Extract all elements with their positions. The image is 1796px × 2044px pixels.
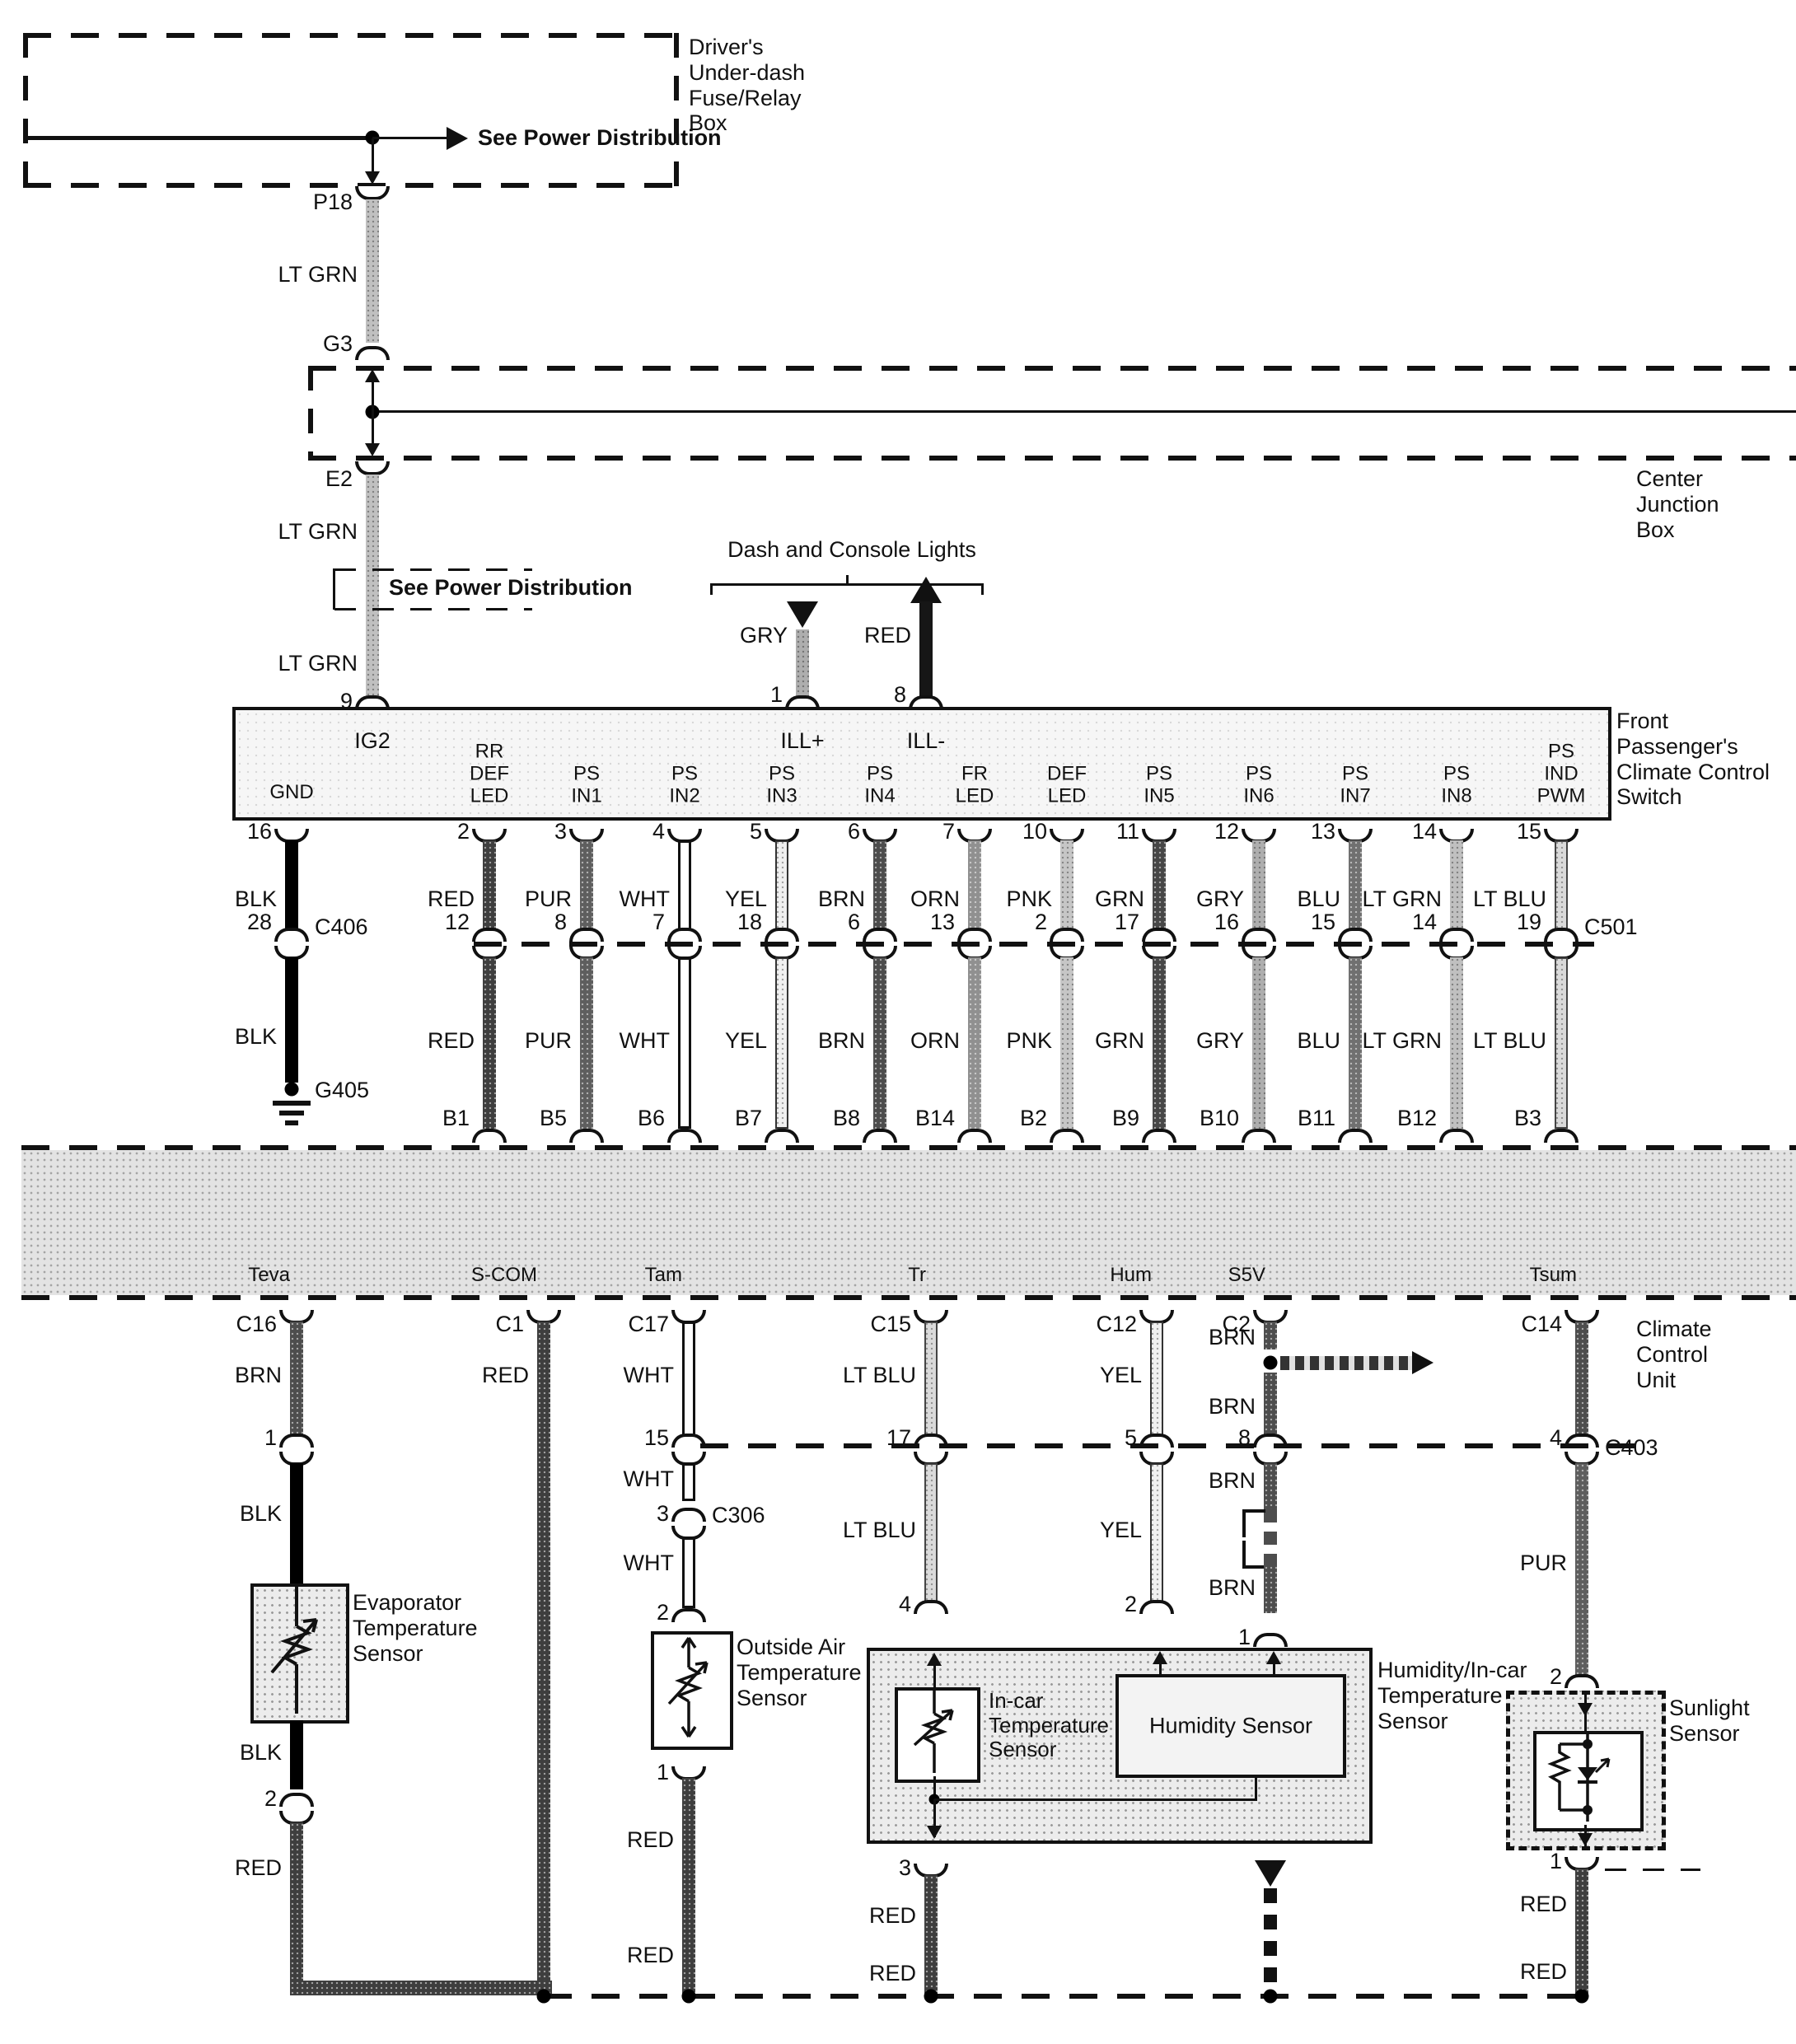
pin-number: 6 bbox=[848, 819, 860, 844]
wire-color-label: WHT bbox=[620, 886, 670, 912]
wire-color-label: BRN bbox=[1209, 1394, 1256, 1420]
junction-drop-line bbox=[372, 376, 374, 450]
wire-color-label: RED bbox=[627, 1827, 674, 1853]
wire bbox=[1153, 840, 1166, 933]
ccu-signal-tam: Tam bbox=[645, 1264, 682, 1286]
wire bbox=[1575, 1869, 1588, 1994]
connector-cap bbox=[1338, 928, 1373, 942]
connector-line-c403 bbox=[700, 1443, 1639, 1448]
wire bbox=[1252, 957, 1265, 1129]
junction-box-border-bottom bbox=[308, 456, 1796, 461]
b-pin-number: B5 bbox=[540, 1106, 567, 1131]
wire bbox=[1264, 1463, 1277, 1509]
down-arrow-icon bbox=[787, 601, 818, 628]
pin-number: 13 bbox=[1311, 819, 1335, 844]
connector-c14: C14 bbox=[1521, 1312, 1562, 1337]
junction-dot bbox=[1264, 1356, 1278, 1370]
connector-cap bbox=[667, 928, 702, 942]
wire bbox=[873, 957, 886, 1129]
wire-color-label: RED bbox=[627, 1943, 674, 1968]
wire-color-label: ORN bbox=[910, 886, 960, 912]
wire bbox=[682, 1537, 695, 1608]
ccu-signal-tr: Tr bbox=[908, 1264, 926, 1286]
ground-dot bbox=[285, 1083, 299, 1097]
connector-cap bbox=[355, 461, 390, 475]
wire-color-label: GRY bbox=[740, 623, 788, 648]
wire bbox=[1060, 840, 1073, 933]
pin-number: 2 bbox=[657, 1600, 669, 1625]
mid-pin-number: 18 bbox=[737, 910, 762, 935]
wire bbox=[924, 1875, 938, 1994]
ccu-signal-teva: Teva bbox=[248, 1264, 290, 1286]
connector-cap bbox=[1338, 1129, 1373, 1143]
b-pin-number: B3 bbox=[1514, 1106, 1541, 1131]
mid-pin-number: 19 bbox=[1517, 910, 1541, 935]
pin-name: PS IN1 bbox=[571, 763, 601, 807]
wire-color-label: GRN bbox=[1095, 1028, 1144, 1054]
pin-name: FR LED bbox=[956, 763, 994, 807]
wire bbox=[1349, 840, 1362, 933]
pin-g3: G3 bbox=[323, 331, 353, 357]
wire-color-label: RED bbox=[235, 1855, 282, 1881]
wire bbox=[1264, 1565, 1277, 1613]
down-arrow-icon bbox=[365, 171, 380, 185]
wire bbox=[290, 1321, 303, 1437]
mid-pin-number: 15 bbox=[1311, 910, 1335, 935]
wire-color-label: PNK bbox=[1006, 1028, 1052, 1054]
wire bbox=[1450, 957, 1463, 1129]
wire bbox=[1264, 1321, 1277, 1349]
wire bbox=[1450, 840, 1463, 933]
fuse-box-border-bottom bbox=[23, 183, 677, 188]
pin-number: 2 bbox=[264, 1786, 277, 1812]
connector-cap bbox=[1139, 1600, 1174, 1614]
pin-number: 1 bbox=[264, 1425, 277, 1451]
wire bbox=[290, 1720, 303, 1789]
ground-icon bbox=[285, 1120, 298, 1125]
pin-number: 15 bbox=[1517, 819, 1541, 844]
pin-name: PS IND PWM bbox=[1537, 741, 1586, 807]
wire bbox=[682, 1321, 695, 1437]
pin-number: 1 bbox=[1550, 1849, 1562, 1874]
see-power-distribution-note: See Power Distribution bbox=[478, 125, 722, 151]
wire bbox=[1555, 840, 1568, 933]
wire-color-label: BLK bbox=[240, 1501, 282, 1527]
wire-color-label: RED bbox=[1520, 1892, 1567, 1917]
pin-28: 28 bbox=[247, 910, 272, 935]
wire-color-label: ORN bbox=[910, 1028, 960, 1054]
b-pin-number: B14 bbox=[915, 1106, 955, 1131]
connector-cap bbox=[671, 1508, 706, 1522]
connector-cap bbox=[1544, 1129, 1579, 1143]
thermistor-icon bbox=[654, 1635, 723, 1740]
continuation-arrow bbox=[1280, 1356, 1412, 1370]
connector-cap bbox=[957, 928, 992, 942]
internal-wire bbox=[934, 1798, 1257, 1801]
wire-blk bbox=[285, 840, 298, 933]
mid-pin-number: 14 bbox=[1412, 910, 1437, 935]
down-arrow-icon bbox=[365, 443, 380, 456]
junction-box-border-top bbox=[308, 366, 1796, 371]
wire-color-label: LT GRN bbox=[278, 519, 358, 545]
pin-number: 3 bbox=[899, 1855, 911, 1881]
wire-gry bbox=[796, 629, 809, 697]
pin-number: 11 bbox=[1116, 819, 1139, 844]
connector-cap bbox=[274, 928, 309, 942]
junction-box-label: Center Junction Box bbox=[1636, 466, 1719, 542]
wire bbox=[1575, 1321, 1588, 1437]
pin-e2: E2 bbox=[325, 466, 353, 492]
pin-number: 3 bbox=[554, 819, 567, 844]
wire-color-label: PNK bbox=[1006, 886, 1052, 912]
b-pin-number: B11 bbox=[1298, 1106, 1335, 1131]
connector-cap bbox=[355, 186, 390, 200]
pin-1: 1 bbox=[770, 682, 783, 708]
pin-name: PS IN2 bbox=[669, 763, 699, 807]
connector-cap bbox=[1242, 1129, 1276, 1143]
mid-pin-number: 2 bbox=[1035, 910, 1047, 935]
b-pin-number: B6 bbox=[638, 1106, 665, 1131]
wire-color-label: LT BLU bbox=[1473, 886, 1546, 912]
wire-color-label: RED bbox=[869, 1961, 916, 1986]
pin-name: PS IN3 bbox=[766, 763, 797, 807]
wire bbox=[924, 1463, 938, 1613]
ccu-signal-hum: Hum bbox=[1110, 1264, 1152, 1286]
junction-dot bbox=[1264, 1990, 1278, 2004]
thermistor-icon bbox=[898, 1691, 970, 1773]
wire-color-label: LT GRN bbox=[278, 651, 358, 676]
ground-icon bbox=[273, 1101, 311, 1106]
b-pin-number: B7 bbox=[735, 1106, 762, 1131]
connector-cap bbox=[1050, 1129, 1084, 1143]
wire bbox=[678, 957, 691, 1129]
pin-number: 2 bbox=[457, 819, 470, 844]
wire-color-label: RED bbox=[869, 1903, 916, 1929]
fuse-box-border-left bbox=[23, 33, 28, 188]
connector-cap bbox=[1439, 1129, 1474, 1143]
mid-pin-number: 17 bbox=[1115, 910, 1139, 935]
outside-air-temperature-sensor bbox=[651, 1631, 733, 1750]
connector-cap bbox=[1142, 928, 1176, 942]
wire-color-label: LT GRN bbox=[1362, 886, 1442, 912]
feed-wire bbox=[25, 136, 374, 140]
connector-cap bbox=[1564, 1674, 1599, 1688]
b-pin-number: B12 bbox=[1397, 1106, 1437, 1131]
connector-cap bbox=[863, 928, 897, 942]
bottom-bus-line bbox=[544, 1994, 1588, 1999]
wire-blk bbox=[285, 957, 298, 1083]
wire bbox=[924, 1321, 938, 1437]
wire bbox=[1150, 1321, 1163, 1437]
connector-cap bbox=[957, 1129, 992, 1143]
connector-cap bbox=[279, 1434, 314, 1448]
shield-wire-segment bbox=[1264, 1509, 1277, 1565]
in-car-temperature-sensor bbox=[895, 1687, 980, 1783]
junction-dot bbox=[682, 1990, 696, 2004]
wire-color-label: BRN bbox=[235, 1363, 282, 1388]
connector-cap bbox=[914, 1600, 948, 1614]
wire-color-label: WHT bbox=[624, 1466, 674, 1492]
right-arrow-icon bbox=[1412, 1351, 1434, 1374]
ccu-label: Climate Control Unit bbox=[1636, 1317, 1712, 1392]
shield-bracket-icon bbox=[1242, 1509, 1265, 1537]
wire-color-label: RED bbox=[428, 1028, 475, 1054]
wire bbox=[1252, 840, 1265, 933]
wire-color-label: GRY bbox=[1196, 886, 1244, 912]
up-arrow-icon bbox=[365, 369, 380, 382]
wire bbox=[682, 1778, 695, 1994]
b-pin-number: B10 bbox=[1200, 1106, 1239, 1131]
signal-gnd: GND bbox=[269, 781, 313, 803]
wire-color-label: YEL bbox=[1100, 1363, 1142, 1388]
arrow-line bbox=[372, 137, 447, 139]
connector-cap bbox=[765, 1129, 799, 1143]
humidity-incar-temperature-sensor: In-car Temperature Sensor Humidity Senso… bbox=[867, 1648, 1373, 1844]
wire-color-label: BLK bbox=[240, 1740, 282, 1766]
wire-color-label: BLK bbox=[235, 1024, 277, 1050]
signal-ig2: IG2 bbox=[354, 728, 391, 754]
wire-lt-grn bbox=[366, 475, 379, 697]
wire bbox=[580, 957, 593, 1129]
pin-number: 7 bbox=[942, 819, 955, 844]
pin-number: 5 bbox=[750, 819, 762, 844]
wire bbox=[1060, 957, 1073, 1129]
pin-number: 1 bbox=[1238, 1625, 1251, 1650]
pin-number: 12 bbox=[1214, 819, 1239, 844]
junction-dot bbox=[924, 1990, 938, 2004]
wire-color-label: GRN bbox=[1095, 886, 1144, 912]
wire-elbow bbox=[290, 1981, 552, 1995]
connector-cap bbox=[671, 1608, 706, 1622]
wire-color-label: BRN bbox=[818, 886, 865, 912]
pin-p18: P18 bbox=[313, 189, 353, 215]
connector-cap bbox=[472, 928, 507, 942]
wire bbox=[1153, 957, 1166, 1129]
down-arrow-icon bbox=[1578, 1833, 1593, 1846]
note-bracket bbox=[333, 568, 335, 610]
humidity-sensor: Humidity Sensor bbox=[1115, 1674, 1346, 1778]
connector-cap bbox=[1439, 928, 1474, 942]
connector-c15: C15 bbox=[870, 1312, 911, 1337]
signal-ill-plus: ILL+ bbox=[780, 728, 824, 754]
pin-number: 2 bbox=[1125, 1592, 1137, 1617]
wire-color-label: YEL bbox=[725, 886, 767, 912]
mid-pin-number: 16 bbox=[1214, 910, 1239, 935]
ground-g405: G405 bbox=[315, 1078, 369, 1103]
sensor-label: Evaporator Temperature Sensor bbox=[353, 1590, 478, 1666]
pin-name: PS IN5 bbox=[1144, 763, 1174, 807]
evaporator-temperature-sensor bbox=[250, 1583, 349, 1724]
wire-color-label: RED bbox=[864, 623, 911, 648]
wire bbox=[775, 957, 788, 1129]
connector-c501: C501 bbox=[1584, 914, 1638, 940]
pin-number: 15 bbox=[644, 1425, 669, 1451]
wire bbox=[968, 957, 981, 1129]
up-arrow-icon bbox=[910, 577, 942, 603]
wire-lt-grn bbox=[366, 199, 379, 343]
pin-number: 4 bbox=[652, 819, 665, 844]
mid-pin-number: 7 bbox=[652, 910, 665, 935]
connector-cap bbox=[863, 1129, 897, 1143]
mid-pin-number: 6 bbox=[848, 910, 860, 935]
connector-c12: C12 bbox=[1096, 1312, 1137, 1337]
connector-cap bbox=[355, 346, 390, 360]
wire bbox=[290, 1463, 303, 1583]
wire bbox=[775, 840, 788, 933]
pin-8: 8 bbox=[894, 682, 906, 708]
wire-color-label: RED bbox=[428, 886, 475, 912]
photodiode-icon bbox=[1536, 1734, 1634, 1822]
right-arrow-icon bbox=[447, 127, 468, 150]
pin-number: 4 bbox=[899, 1592, 911, 1617]
connector-cap bbox=[569, 928, 604, 942]
down-arrow-icon bbox=[1255, 1860, 1286, 1887]
down-arrow-icon bbox=[927, 1826, 942, 1839]
connector-cap bbox=[279, 1793, 314, 1807]
wire-color-label: BRN bbox=[1209, 1325, 1256, 1350]
junction-bus-line bbox=[372, 410, 1796, 413]
brace-tick bbox=[710, 583, 713, 595]
b-pin-number: B9 bbox=[1112, 1106, 1139, 1131]
note-line-bottom bbox=[334, 608, 532, 610]
wire bbox=[1150, 1463, 1163, 1613]
wire-color-label: RED bbox=[1520, 1959, 1567, 1985]
wire-color-label: LT GRN bbox=[1362, 1028, 1442, 1054]
wire-color-label: BLU bbox=[1297, 886, 1340, 912]
connector-c406: C406 bbox=[315, 914, 368, 940]
connector-cap bbox=[1142, 1129, 1176, 1143]
wire-color-label: BLU bbox=[1297, 1028, 1340, 1054]
connector-cap bbox=[667, 1129, 702, 1143]
wire-color-label: LT BLU bbox=[843, 1518, 916, 1543]
pin-number: 1 bbox=[657, 1760, 669, 1785]
junction-box-border-left bbox=[308, 366, 313, 461]
fuse-box-border-right bbox=[674, 33, 679, 188]
wire-color-label: LT GRN bbox=[278, 262, 358, 288]
humidity-incar-label: Humidity/In-car Temperature Sensor bbox=[1377, 1658, 1527, 1733]
connector-cap bbox=[765, 928, 799, 942]
wire bbox=[1555, 957, 1568, 1129]
connector-c306: C306 bbox=[712, 1503, 765, 1528]
sensor-label: In-car Temperature Sensor bbox=[989, 1689, 1109, 1762]
wire bbox=[290, 1822, 303, 1982]
fuse-box-border-top bbox=[23, 33, 677, 38]
pin-number: 2 bbox=[1550, 1664, 1562, 1690]
ccu-signal-scom: S-COM bbox=[471, 1264, 537, 1286]
connector-c16: C16 bbox=[236, 1312, 277, 1337]
switch-box-label: Front Passenger's Climate Control Switch bbox=[1616, 709, 1770, 810]
dashed-continuation-wire bbox=[1264, 1888, 1277, 1989]
ccu-signal-tsum: Tsum bbox=[1530, 1264, 1577, 1286]
thermistor-icon bbox=[254, 1587, 339, 1714]
ccu-border-top bbox=[21, 1145, 1796, 1150]
wire-color-label: YEL bbox=[1100, 1518, 1142, 1543]
wire-color-label: LT BLU bbox=[1473, 1028, 1546, 1054]
pin-number: 10 bbox=[1022, 819, 1047, 844]
ground-icon bbox=[279, 1111, 304, 1116]
wire bbox=[678, 840, 691, 933]
signal-ill-minus: ILL- bbox=[907, 728, 946, 754]
wire bbox=[682, 1463, 695, 1501]
connector-c17: C17 bbox=[628, 1312, 669, 1337]
see-power-distribution-note: See Power Distribution bbox=[389, 575, 633, 601]
up-arrow-icon bbox=[1153, 1651, 1167, 1664]
connector-cap bbox=[1544, 928, 1579, 942]
note-line-top bbox=[334, 568, 532, 571]
junction-dot bbox=[1575, 1990, 1589, 2004]
pin-name: PS IN4 bbox=[864, 763, 895, 807]
dash-console-lights-title: Dash and Console Lights bbox=[727, 537, 976, 563]
pin-name: PS IN6 bbox=[1243, 763, 1274, 807]
wire-color-label: LT BLU bbox=[843, 1363, 916, 1388]
wire bbox=[537, 1321, 550, 1996]
b-pin-number: B2 bbox=[1020, 1106, 1047, 1131]
wire-color-label: PUR bbox=[1520, 1551, 1567, 1576]
connector-cap bbox=[472, 1129, 507, 1143]
mid-pin-number: 13 bbox=[930, 910, 955, 935]
mid-pin-number: 12 bbox=[445, 910, 470, 935]
connector-cap bbox=[1253, 1633, 1288, 1647]
wire bbox=[1575, 1463, 1588, 1676]
pin-name: DEF LED bbox=[1047, 763, 1087, 807]
wire-color-label: WHT bbox=[624, 1363, 674, 1388]
wire-color-label: BRN bbox=[1209, 1468, 1256, 1494]
connector-cap bbox=[569, 1129, 604, 1143]
wire-color-label: BRN bbox=[818, 1028, 865, 1054]
shield-bracket-icon bbox=[1242, 1541, 1265, 1569]
wire bbox=[1264, 1373, 1277, 1437]
wire bbox=[483, 840, 496, 933]
wire-color-label: GRY bbox=[1196, 1028, 1244, 1054]
connector-cap bbox=[1050, 928, 1084, 942]
b-pin-number: B8 bbox=[833, 1106, 860, 1131]
sunlight-sensor-label: Sunlight Sensor bbox=[1669, 1696, 1750, 1747]
wire-color-label: BLK bbox=[235, 886, 277, 912]
wire-color-label: YEL bbox=[725, 1028, 767, 1054]
pin-name: PS IN7 bbox=[1340, 763, 1370, 807]
wire-color-label: PUR bbox=[525, 886, 572, 912]
ccu-border-bottom bbox=[21, 1295, 1796, 1300]
wire-color-label: WHT bbox=[620, 1028, 670, 1054]
humidity-sensor-label: Humidity Sensor bbox=[1149, 1714, 1312, 1739]
fuse-box-label: Driver's Under-dash Fuse/Relay Box bbox=[689, 35, 805, 136]
stray-dash-line bbox=[1605, 1869, 1700, 1871]
down-arrow-icon bbox=[1578, 1703, 1593, 1716]
connector-c1: C1 bbox=[495, 1312, 524, 1337]
wire-color-label: PUR bbox=[525, 1028, 572, 1054]
pin-number: 14 bbox=[1412, 819, 1437, 844]
climate-control-switch-box bbox=[232, 707, 1611, 821]
brace-tick bbox=[981, 583, 984, 595]
ccu-signal-s5v: S5V bbox=[1228, 1264, 1265, 1286]
pin-name: PS IN8 bbox=[1441, 763, 1471, 807]
brace-notch bbox=[846, 575, 849, 585]
mid-pin-number: 8 bbox=[554, 910, 567, 935]
b-pin-number: B1 bbox=[442, 1106, 470, 1131]
wire-color-label: WHT bbox=[624, 1551, 674, 1576]
wire bbox=[483, 957, 496, 1129]
up-arrow-icon bbox=[1266, 1651, 1281, 1664]
wire bbox=[873, 840, 886, 933]
wire-red bbox=[919, 601, 933, 697]
sensor-label: Outside Air Temperature Sensor bbox=[737, 1635, 862, 1710]
drop-line bbox=[372, 138, 374, 175]
sunlight-sensor bbox=[1506, 1691, 1666, 1850]
wire bbox=[580, 840, 593, 933]
wire-color-label: BRN bbox=[1209, 1575, 1256, 1601]
connector-cap bbox=[1242, 928, 1276, 942]
connector-line-c501 bbox=[474, 942, 1594, 947]
